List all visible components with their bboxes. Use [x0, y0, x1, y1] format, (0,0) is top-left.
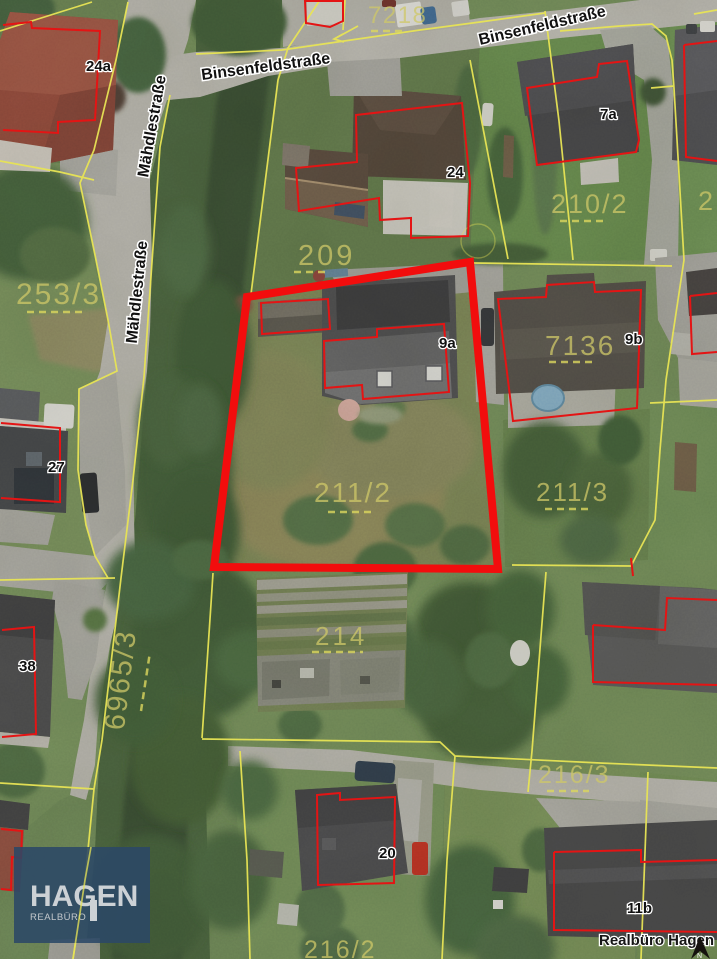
svg-text:211/2: 211/2 [314, 477, 392, 508]
svg-text:24a: 24a [86, 58, 112, 75]
svg-text:7136: 7136 [545, 330, 615, 361]
svg-text:216/3: 216/3 [538, 761, 611, 789]
svg-text:21: 21 [698, 186, 717, 216]
svg-text:20: 20 [379, 845, 396, 862]
svg-text:38: 38 [19, 658, 36, 675]
svg-text:9a: 9a [439, 335, 456, 352]
svg-text:7a: 7a [600, 106, 617, 123]
svg-text:216/2: 216/2 [304, 936, 377, 959]
svg-text:11b: 11b [627, 900, 652, 917]
svg-text:211/3: 211/3 [536, 477, 609, 507]
svg-text:214: 214 [315, 621, 367, 651]
svg-text:27: 27 [48, 459, 65, 476]
svg-text:7218: 7218 [368, 2, 427, 29]
svg-text:N: N [697, 953, 702, 959]
svg-text:9b: 9b [625, 331, 643, 348]
svg-text:REALBÜRO: REALBÜRO [30, 912, 86, 923]
svg-text:24: 24 [447, 164, 464, 181]
svg-text:210/2: 210/2 [551, 189, 629, 219]
svg-text:253/3: 253/3 [16, 278, 101, 311]
svg-text:209: 209 [298, 240, 355, 272]
